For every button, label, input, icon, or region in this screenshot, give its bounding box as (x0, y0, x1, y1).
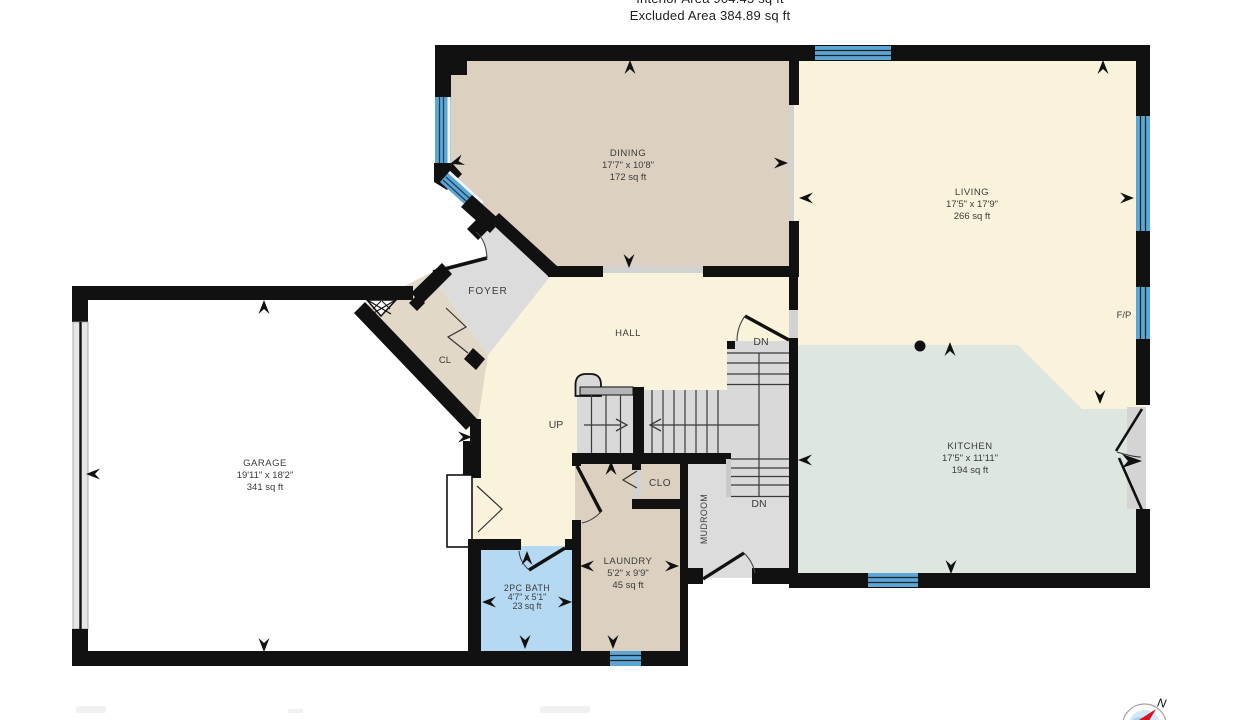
svg-text:Excluded Area 384.89 sq ft: Excluded Area 384.89 sq ft (630, 8, 791, 23)
svg-text:17'5" x 11'11": 17'5" x 11'11" (942, 453, 998, 464)
svg-text:172 sq ft: 172 sq ft (610, 172, 647, 183)
svg-text:KITCHEN: KITCHEN (947, 441, 992, 452)
svg-text:LIVING: LIVING (955, 187, 989, 198)
svg-text:194 sq ft: 194 sq ft (952, 465, 989, 476)
svg-text:17'5" x 17'9": 17'5" x 17'9" (946, 199, 998, 210)
svg-text:17'7" x 10'8": 17'7" x 10'8" (602, 160, 654, 171)
svg-text:19'11" x 18'2": 19'11" x 18'2" (237, 470, 294, 481)
svg-text:HALL: HALL (615, 328, 641, 339)
svg-text:LAUNDRY: LAUNDRY (604, 556, 653, 567)
svg-text:266 sq ft: 266 sq ft (954, 211, 991, 222)
svg-text:GARAGE: GARAGE (243, 458, 287, 469)
svg-text:CLO: CLO (649, 478, 671, 489)
svg-text:5'2" x 9'9": 5'2" x 9'9" (607, 568, 649, 579)
svg-text:CL: CL (439, 355, 451, 366)
svg-text:45 sq ft: 45 sq ft (612, 580, 644, 591)
svg-text:DN: DN (751, 498, 766, 510)
svg-text:DINING: DINING (610, 148, 646, 159)
svg-text:MUDROOM: MUDROOM (699, 494, 709, 544)
svg-text:UP: UP (549, 419, 564, 431)
svg-text:DN: DN (753, 336, 768, 348)
svg-text:FOYER: FOYER (468, 286, 507, 297)
svg-text:Interior Area 904.45 sq ft: Interior Area 904.45 sq ft (636, 0, 784, 6)
svg-text:341 sq ft: 341 sq ft (247, 482, 284, 493)
svg-text:F/P: F/P (1117, 310, 1132, 321)
svg-text:23 sq ft: 23 sq ft (513, 601, 542, 611)
